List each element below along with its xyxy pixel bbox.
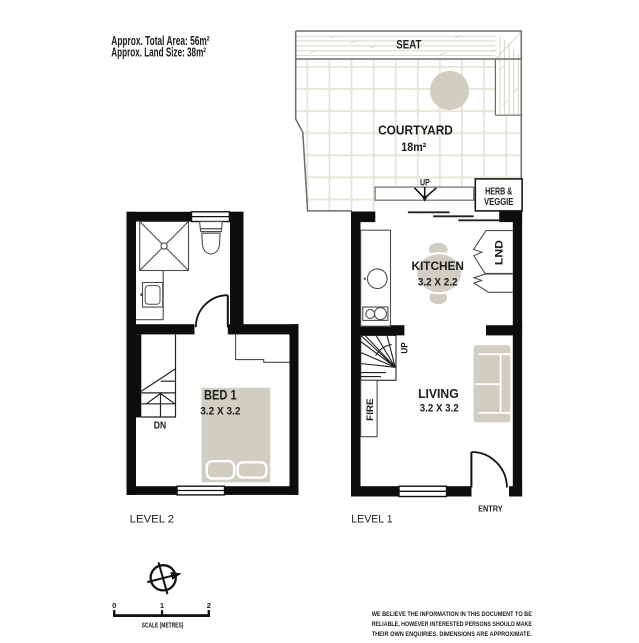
svg-text:WE BELIEVE THE INFORMATION IN: WE BELIEVE THE INFORMATION IN THIS DOCUM… [372,611,533,618]
svg-text:2: 2 [207,601,211,610]
svg-text:UP: UP [420,177,430,187]
svg-text:3.2 X 3.2: 3.2 X 3.2 [200,406,240,418]
svg-text:DN: DN [154,421,166,432]
svg-text:3.2 X 3.2: 3.2 X 3.2 [420,403,459,415]
svg-text:KITCHEN: KITCHEN [411,259,464,273]
svg-text:18m²: 18m² [401,140,426,154]
svg-text:ENTRY: ENTRY [478,504,503,513]
svg-text:COURTYARD: COURTYARD [378,123,453,138]
svg-text:FIRE: FIRE [365,398,376,420]
svg-text:3.2 X 2.2: 3.2 X 2.2 [418,276,458,288]
svg-text:SCALE (METRES): SCALE (METRES) [142,621,184,630]
svg-text:SEAT: SEAT [396,38,422,52]
svg-text:0: 0 [112,601,116,610]
svg-text:LEVEL 2: LEVEL 2 [130,514,174,526]
svg-text:LIVING: LIVING [418,386,459,401]
svg-text:Approx. Land Size: 38m²: Approx. Land Size: 38m² [111,44,206,59]
svg-text:RELIABLE, HOWEVER INTERESTED P: RELIABLE, HOWEVER INTERESTED PERSONS SHO… [372,621,533,628]
svg-text:LEVEL 1: LEVEL 1 [351,514,392,526]
svg-text:BED 1: BED 1 [204,387,237,402]
svg-text:VEGGIE: VEGGIE [484,197,514,208]
svg-text:UP: UP [399,342,409,353]
svg-text:LND: LND [493,240,505,265]
svg-text:THEIR OWN ENQUIRIES. DIMENSION: THEIR OWN ENQUIRIES. DIMENSIONS ARE APPR… [372,631,532,638]
svg-text:1: 1 [160,601,164,610]
svg-text:HERB &: HERB & [485,187,512,198]
